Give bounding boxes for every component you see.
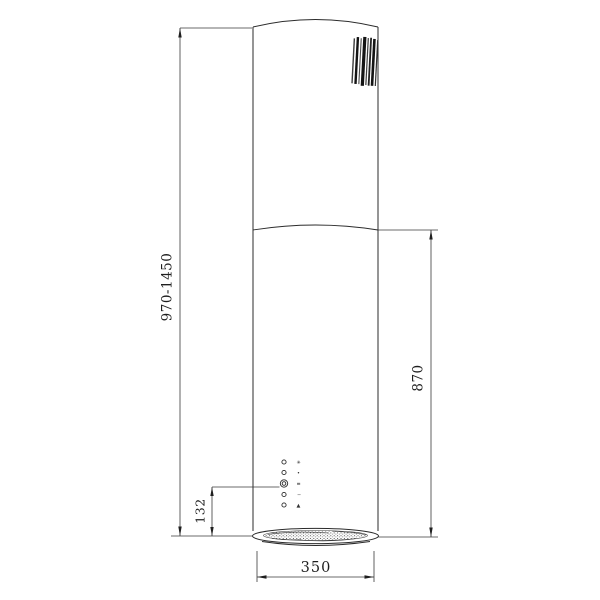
arrow-down-icon — [210, 527, 213, 536]
cylinder-body — [253, 20, 378, 532]
dimension-body-height — [378, 230, 438, 537]
range-hood-technical-drawing: ✳ • ≡ − ▲ 970-1450 — [0, 0, 600, 600]
button-symbol-3-icon: ≡ — [297, 482, 301, 488]
grease-filter — [253, 528, 379, 545]
button-symbol-5-icon: ▲ — [297, 503, 301, 509]
arrow-down-icon — [178, 527, 181, 537]
control-panel — [280, 460, 287, 507]
dim-label-body-height: 870 — [411, 364, 427, 391]
control-button-1 — [282, 460, 286, 464]
arrow-up-icon — [210, 487, 213, 496]
dim-label-control-offset: 132 — [193, 498, 208, 523]
button-symbol-2-icon: • — [297, 471, 300, 477]
body-junction-rim — [253, 225, 378, 230]
barcode-sticker-icon — [351, 36, 378, 86]
control-button-3-inner — [282, 482, 286, 486]
arrow-up-icon — [178, 28, 181, 38]
control-button-2 — [282, 470, 286, 474]
arrow-right-icon — [365, 575, 375, 578]
button-symbol-4-icon: − — [297, 493, 301, 499]
dim-label-overall-height: 970-1450 — [160, 253, 176, 322]
control-button-symbols: ✳ • ≡ − ▲ — [297, 460, 302, 509]
dimension-overall-height — [171, 28, 253, 536]
dim-label-diameter: 350 — [301, 560, 332, 576]
control-button-5 — [282, 503, 286, 507]
arrow-down-icon — [429, 528, 432, 538]
control-button-4 — [282, 492, 286, 496]
drawing-canvas: ✳ • ≡ − ▲ 970-1450 — [0, 0, 600, 600]
arrow-up-icon — [429, 230, 432, 240]
dimension-control-offset — [210, 487, 279, 536]
button-symbol-1-icon: ✳ — [297, 460, 301, 466]
chimney-top-rim — [253, 20, 378, 28]
arrow-left-icon — [257, 575, 267, 578]
